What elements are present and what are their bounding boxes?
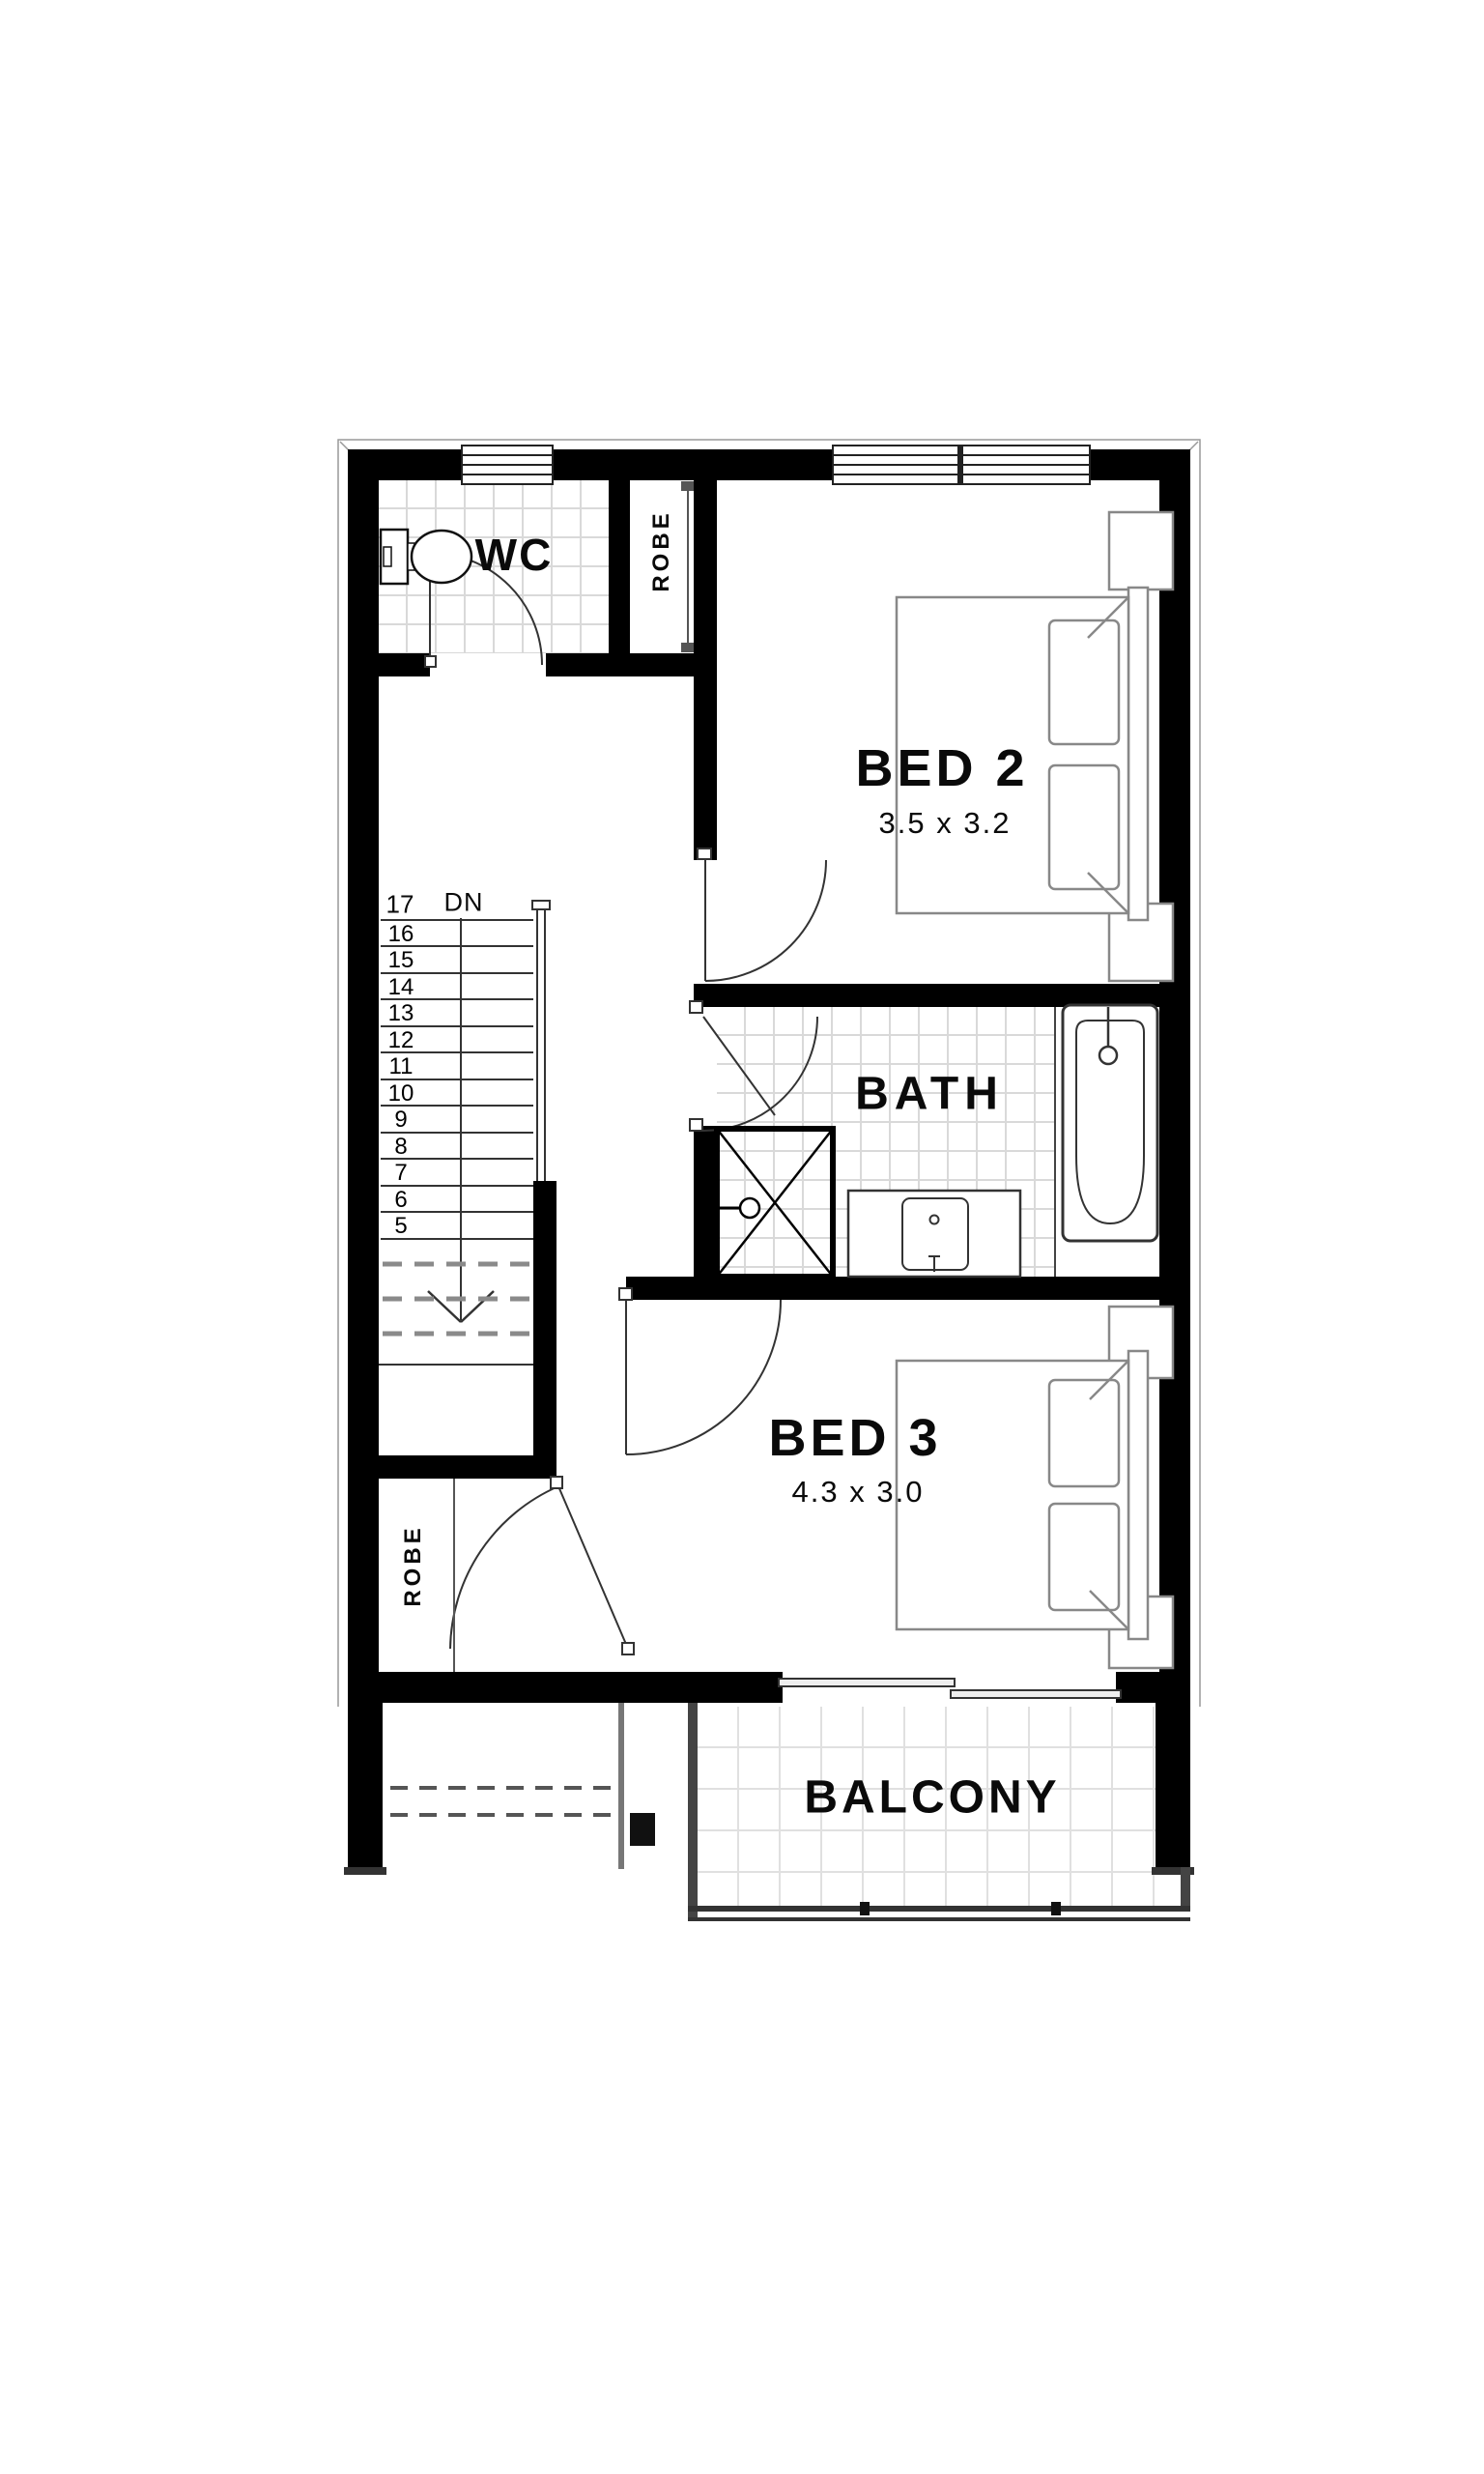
wall-bed2-bath: [694, 984, 1159, 1007]
bath-fixtures: [717, 1005, 1157, 1277]
bed3-furniture: [897, 1307, 1173, 1668]
wall-wc-bottom-a: [379, 653, 430, 676]
window: [462, 446, 553, 484]
wall-left: [348, 449, 379, 1703]
stair-step-number: 6: [379, 1187, 423, 1214]
pillow: [1049, 620, 1119, 744]
doors: [425, 553, 826, 1654]
wall-bed2-left: [694, 449, 717, 860]
wall-bottom-right: [1116, 1672, 1190, 1703]
roof-dashed-lines: [390, 1788, 618, 1815]
bed-headboard: [1128, 1351, 1148, 1639]
stair-down-label: DN: [444, 888, 484, 918]
bed2-room-label: BED 2: [855, 738, 1028, 798]
stair-step-number: 8: [379, 1134, 423, 1161]
robe-lower-label: ROBE: [400, 1524, 427, 1606]
robe-upper-label: ROBE: [648, 509, 675, 591]
wall-shower-left: [694, 1126, 717, 1300]
stair-step-number: 15: [379, 947, 423, 974]
open-riser-dashed-lines: [383, 1264, 533, 1334]
wall-bath-bed3: [626, 1277, 1159, 1300]
bathtub-icon: [1063, 1005, 1157, 1241]
pillow: [1049, 765, 1119, 889]
bed3-room-label: BED 3: [768, 1408, 941, 1468]
stair-step-number: 5: [379, 1213, 423, 1240]
bed2-dimensions: 3.5 x 3.2: [879, 806, 1012, 841]
stair-top-step-number: 17: [386, 890, 414, 920]
stair-step-number: 7: [379, 1160, 423, 1187]
balcony-column-right: [1156, 1703, 1190, 1867]
wall-stair-side: [533, 1181, 556, 1479]
wall-right: [1159, 449, 1190, 1703]
bedside-table-icon: [1109, 512, 1173, 590]
stair-step-number: 9: [379, 1107, 423, 1134]
robe-door: [450, 1477, 634, 1654]
stair-step-number: 16: [379, 921, 423, 948]
stair-step-number: 14: [379, 974, 423, 1001]
bed-headboard: [1128, 588, 1148, 920]
bed3-door: [619, 1288, 781, 1454]
downpipe: [630, 1813, 655, 1846]
sliding-door: [779, 1679, 1121, 1698]
floor-plan-canvas: WC ROBE BED 2 3.5 x 3.2 BATH BED 3 4.3 x…: [0, 0, 1484, 2474]
wall-wc-robe-divider: [609, 480, 630, 653]
stair-step-number: 11: [379, 1053, 423, 1080]
stair-step-number: 10: [379, 1080, 423, 1108]
window: [833, 446, 1090, 484]
porch-post-left: [348, 1703, 383, 1867]
bath-door: [690, 1001, 817, 1131]
bed2-door: [698, 849, 826, 981]
stair-step-number: 13: [379, 1000, 423, 1027]
bath-room-label: BATH: [855, 1068, 1004, 1121]
stair-handrail: [532, 901, 550, 1181]
wall-bottom-left: [348, 1672, 783, 1703]
shower-icon: [717, 1129, 833, 1277]
toilet-icon: [381, 530, 471, 584]
plan-linework: [0, 0, 1484, 2474]
pillow: [1049, 1504, 1119, 1610]
balcony-structure: [344, 1703, 1194, 1921]
wall-wc-bottom-b: [546, 653, 694, 676]
pillow: [1049, 1380, 1119, 1486]
stair-step-number: 12: [379, 1027, 423, 1054]
balcony-wall-right: [1181, 1867, 1190, 1912]
vanity-basin-icon: [848, 1191, 1020, 1277]
balcony-wall-left: [688, 1703, 698, 1921]
wall-under-stairs: [379, 1455, 556, 1479]
balcony-railing: [688, 1902, 1190, 1921]
wc-room-label: WC: [475, 529, 554, 581]
balcony-room-label: BALCONY: [804, 1771, 1060, 1825]
bed3-dimensions: 4.3 x 3.0: [792, 1475, 925, 1510]
